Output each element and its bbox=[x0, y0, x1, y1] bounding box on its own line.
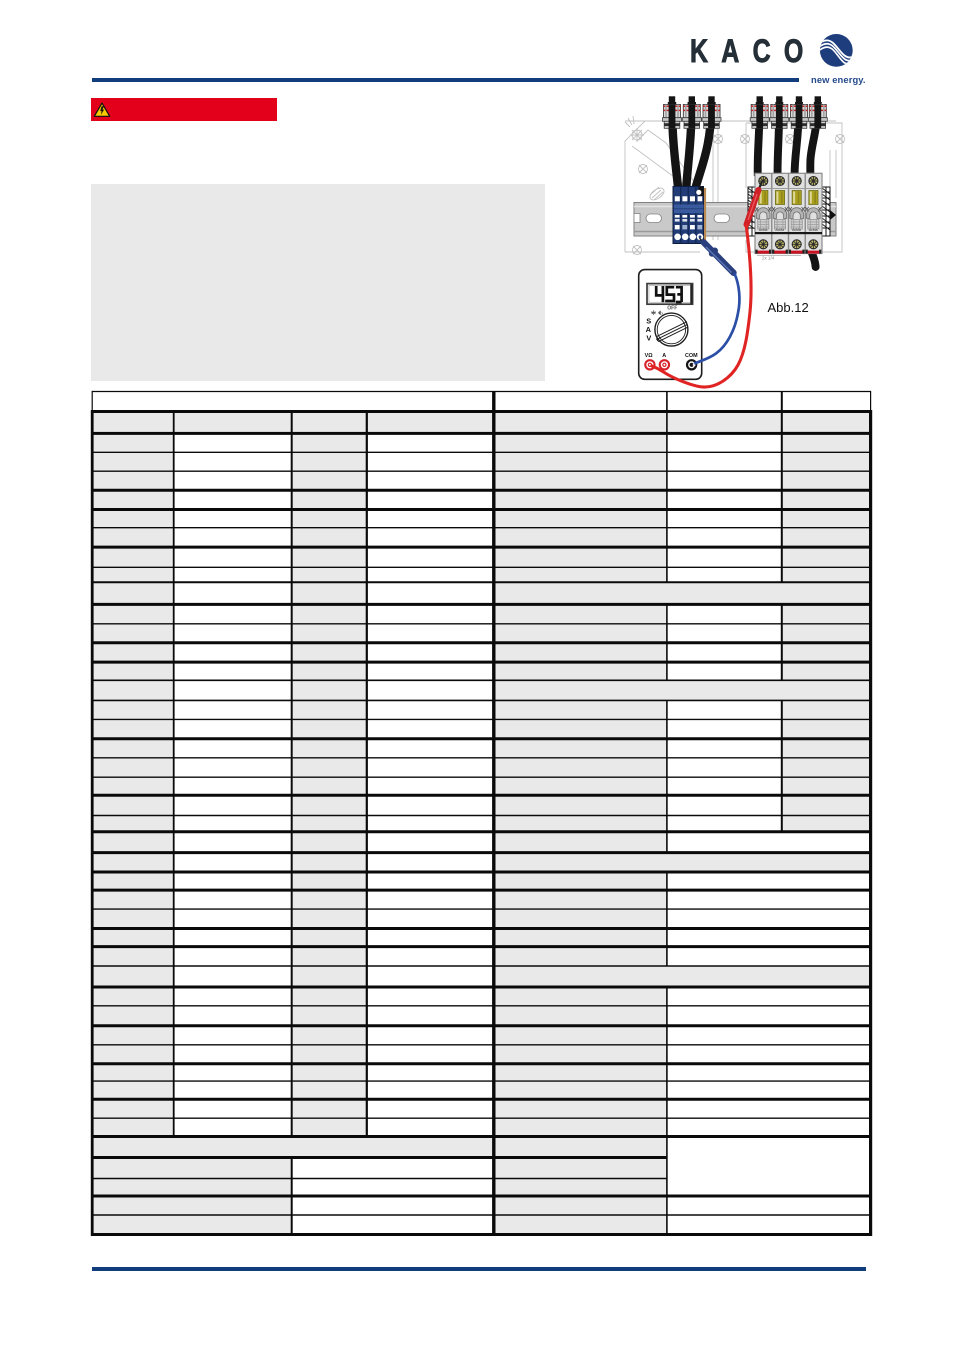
svg-text:AcMa: AcMa bbox=[759, 228, 768, 232]
svg-text:AcMa: AcMa bbox=[809, 228, 818, 232]
svg-text:AcMa: AcMa bbox=[792, 228, 801, 232]
svg-text:AcMa: AcMa bbox=[775, 228, 784, 232]
svg-text:A: A bbox=[662, 353, 666, 359]
svg-text:VΩ: VΩ bbox=[645, 353, 654, 359]
svg-text:COM: COM bbox=[685, 353, 698, 359]
svg-text:OFF: OFF bbox=[667, 306, 677, 312]
svg-text:2x 1/4: 2x 1/4 bbox=[762, 256, 775, 261]
svg-text:Abb.12: Abb.12 bbox=[768, 300, 809, 315]
svg-text:V: V bbox=[646, 333, 651, 342]
